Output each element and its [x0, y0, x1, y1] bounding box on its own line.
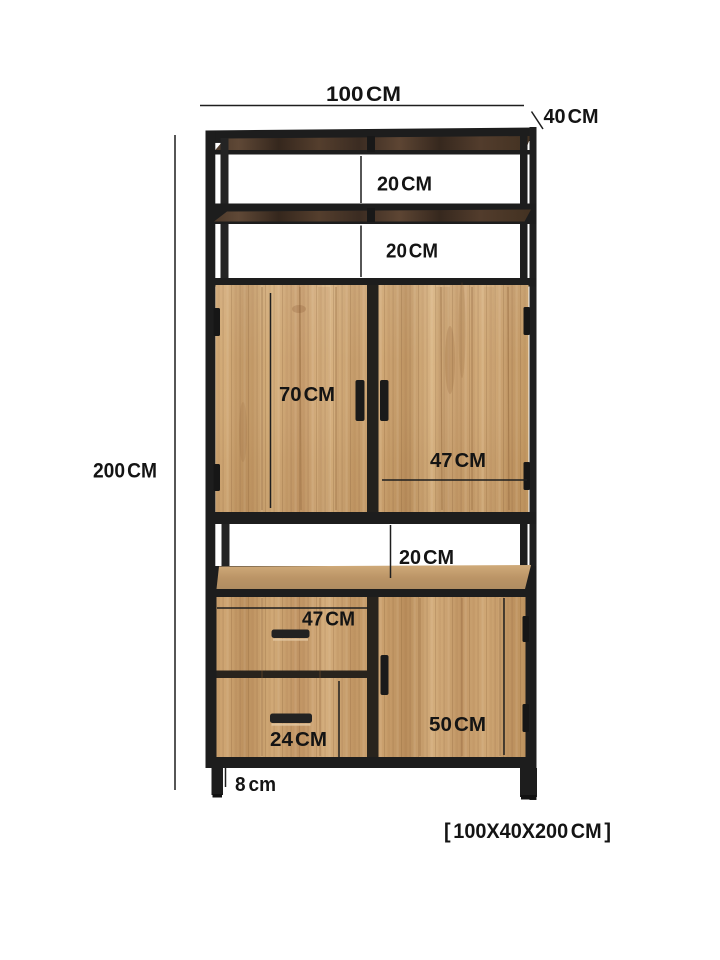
svg-text:40 CM: 40 CM	[544, 106, 599, 128]
svg-text:20 CM: 20 CM	[399, 547, 454, 569]
svg-text:50 CM: 50 CM	[429, 714, 486, 736]
svg-text:47 CM: 47 CM	[430, 450, 486, 472]
svg-text:8 cm: 8 cm	[235, 774, 276, 796]
svg-text:24 CM: 24 CM	[270, 729, 327, 751]
svg-text:[ 100X40X200 CM ]: [ 100X40X200 CM ]	[444, 820, 611, 843]
svg-text:100 CM: 100 CM	[326, 83, 401, 106]
svg-text:200 CM: 200 CM	[93, 460, 157, 483]
svg-text:20 CM: 20 CM	[377, 174, 432, 196]
svg-text:20 CM: 20 CM	[386, 241, 438, 263]
svg-text:70 CM: 70 CM	[279, 384, 335, 406]
svg-text:47 CM: 47 CM	[302, 609, 355, 631]
